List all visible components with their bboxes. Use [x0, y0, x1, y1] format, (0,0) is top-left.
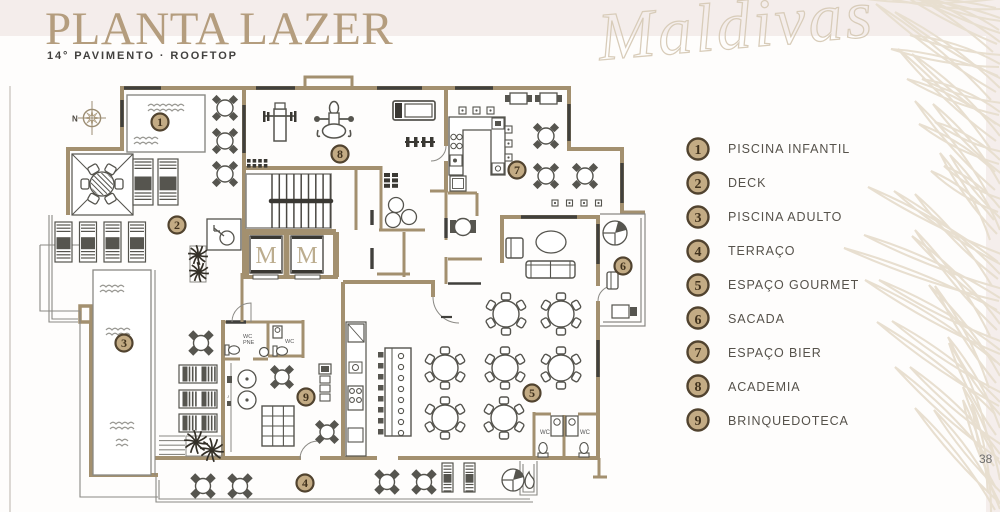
svg-text:6: 6 [695, 313, 702, 328]
svg-text:5: 5 [695, 279, 702, 294]
svg-text:3: 3 [695, 211, 702, 226]
svg-text:TERRAÇO: TERRAÇO [728, 244, 795, 258]
svg-text:SACADA: SACADA [728, 312, 785, 326]
svg-text:ESPAÇO GOURMET: ESPAÇO GOURMET [728, 278, 859, 292]
svg-text:4: 4 [695, 245, 702, 260]
svg-text:ESPAÇO BIER: ESPAÇO BIER [728, 346, 822, 360]
svg-text:ACADEMIA: ACADEMIA [728, 380, 801, 394]
svg-text:PISCINA INFANTIL: PISCINA INFANTIL [728, 142, 850, 156]
svg-text:DECK: DECK [728, 176, 766, 190]
svg-text:1: 1 [695, 143, 702, 158]
svg-text:8: 8 [695, 380, 702, 395]
svg-text:PISCINA ADULTO: PISCINA ADULTO [728, 210, 842, 224]
svg-text:2: 2 [695, 177, 702, 192]
svg-text:BRINQUEDOTECA: BRINQUEDOTECA [728, 414, 849, 428]
svg-text:7: 7 [695, 346, 702, 361]
svg-text:9: 9 [695, 414, 702, 429]
